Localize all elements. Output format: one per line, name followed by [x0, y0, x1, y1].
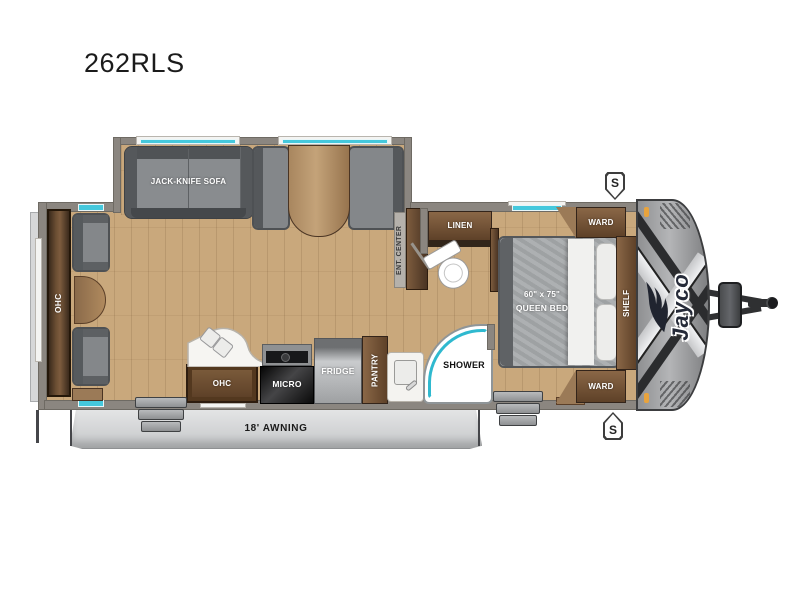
- ward-bottom-label: WARD: [577, 371, 625, 402]
- chair-back: [74, 215, 83, 270]
- bed-label: 60" x 75" QUEEN BED: [512, 288, 572, 318]
- rear-window: [35, 238, 42, 362]
- wardrobe-top: WARD: [576, 207, 626, 238]
- entry-steps-main: [134, 397, 188, 433]
- cap-hatch-top: [660, 203, 690, 229]
- step-tread: [135, 397, 187, 408]
- shower-bedroom-wall-stub: [487, 324, 495, 350]
- speaker-badge-top: S: [605, 172, 625, 200]
- rear-ohc-label: OHC: [49, 211, 69, 395]
- jack-knife-sofa: JACK-KNIFE SOFA: [124, 146, 254, 219]
- ward-top-label: WARD: [577, 208, 625, 237]
- shower-label: SHOWER: [437, 358, 491, 372]
- queen-bed: 60" x 75" QUEEN BED: [498, 236, 620, 368]
- shelf-label: SHELF: [617, 237, 636, 369]
- speaker-icon: S: [605, 414, 621, 438]
- rear-ohc-cabinet: OHC: [47, 209, 71, 397]
- bedroom-window-glass: [512, 205, 562, 211]
- speaker-badge-bottom: S: [603, 412, 623, 440]
- step-tread: [493, 391, 543, 402]
- step-tread: [138, 409, 184, 420]
- floorplan-canvas: 262RLS 18' AWNING JACK-KNIFE SOFA: [0, 0, 800, 600]
- awning-label: 18' AWNING: [71, 409, 481, 448]
- pantry: PANTRY: [362, 336, 388, 404]
- bed-name-label: QUEEN BED: [512, 302, 572, 316]
- chair-arm: [83, 262, 108, 270]
- step-tread: [496, 403, 540, 414]
- chair-arm: [83, 329, 108, 337]
- fridge-label: FRIDGE: [315, 365, 361, 379]
- kitchen-counter-sink: [186, 327, 270, 367]
- fridge: FRIDGE: [314, 338, 362, 404]
- dinette-table: [288, 145, 350, 237]
- front-cap: Jayco: [636, 199, 710, 411]
- burner: [281, 353, 290, 362]
- chair-back: [74, 329, 83, 384]
- bed-size-label: 60" x 75": [512, 288, 572, 302]
- cap-hatch-bottom: [660, 381, 690, 407]
- awning: 18' AWNING: [70, 408, 482, 449]
- speaker-top-letter: S: [611, 176, 619, 190]
- cooktop: [262, 344, 312, 366]
- awning-arm-left: [70, 410, 72, 446]
- step-tread: [499, 415, 537, 426]
- window-rear-bottom-corner: [78, 400, 104, 407]
- ent-center-label: ENT. CENTER: [395, 213, 405, 287]
- page-title: 262RLS: [84, 48, 185, 79]
- sofa-label: JACK-KNIFE SOFA: [137, 175, 240, 189]
- ent-center-face: ENT. CENTER: [394, 212, 406, 288]
- hitch-coupler-ball: [766, 297, 778, 309]
- slideout-window-right-glass: [282, 139, 388, 144]
- pantry-label: PANTRY: [363, 337, 387, 403]
- entry-steps-bedroom: [492, 391, 544, 427]
- chair-arm: [83, 376, 108, 384]
- bed-pillow-bottom: [596, 304, 617, 361]
- bath-wall-upper: [420, 208, 428, 254]
- microwave: MICRO: [260, 366, 314, 404]
- recliner-chair-bottom: [72, 327, 110, 386]
- recliner-chair-top: [72, 213, 110, 272]
- linen-label: LINEN: [429, 212, 491, 240]
- kitchen-ohc-cabinet: OHC: [186, 364, 258, 403]
- jayco-logo-text: Jayco: [668, 273, 694, 340]
- wardrobe-bottom: WARD: [576, 370, 626, 403]
- marker-light-top: [644, 207, 649, 217]
- slideout-left-wall: [113, 137, 121, 213]
- linen-closet: LINEN: [428, 211, 492, 241]
- headboard-shelf: SHELF: [616, 236, 637, 370]
- microwave-label: MICRO: [261, 367, 313, 403]
- chair-arm: [83, 215, 108, 223]
- speaker-bottom-letter: S: [609, 423, 617, 437]
- entry-door-threshold: [200, 403, 246, 408]
- bath-sink: [387, 352, 424, 402]
- jayco-logo: Jayco: [639, 267, 701, 347]
- slideout-window-left-glass: [140, 139, 236, 144]
- step-tread: [141, 421, 181, 432]
- eagle-icon: [646, 280, 668, 334]
- end-table: [72, 388, 103, 401]
- dinette-bench-left: [252, 146, 290, 230]
- marker-light-bottom: [644, 393, 649, 403]
- toilet-bowl-inner: [440, 260, 466, 286]
- propane-tank: [718, 282, 742, 328]
- kitchen-ohc-label: OHC: [188, 366, 256, 401]
- sofa-front-edge: [131, 208, 246, 218]
- bed-pillow-top: [596, 243, 617, 300]
- awning-arm-right: [478, 410, 480, 446]
- window-rear-top-corner: [78, 204, 104, 211]
- rear-stabilizer: [36, 410, 39, 443]
- speaker-icon: S: [607, 174, 623, 198]
- dinette-bench-left-back: [254, 148, 263, 228]
